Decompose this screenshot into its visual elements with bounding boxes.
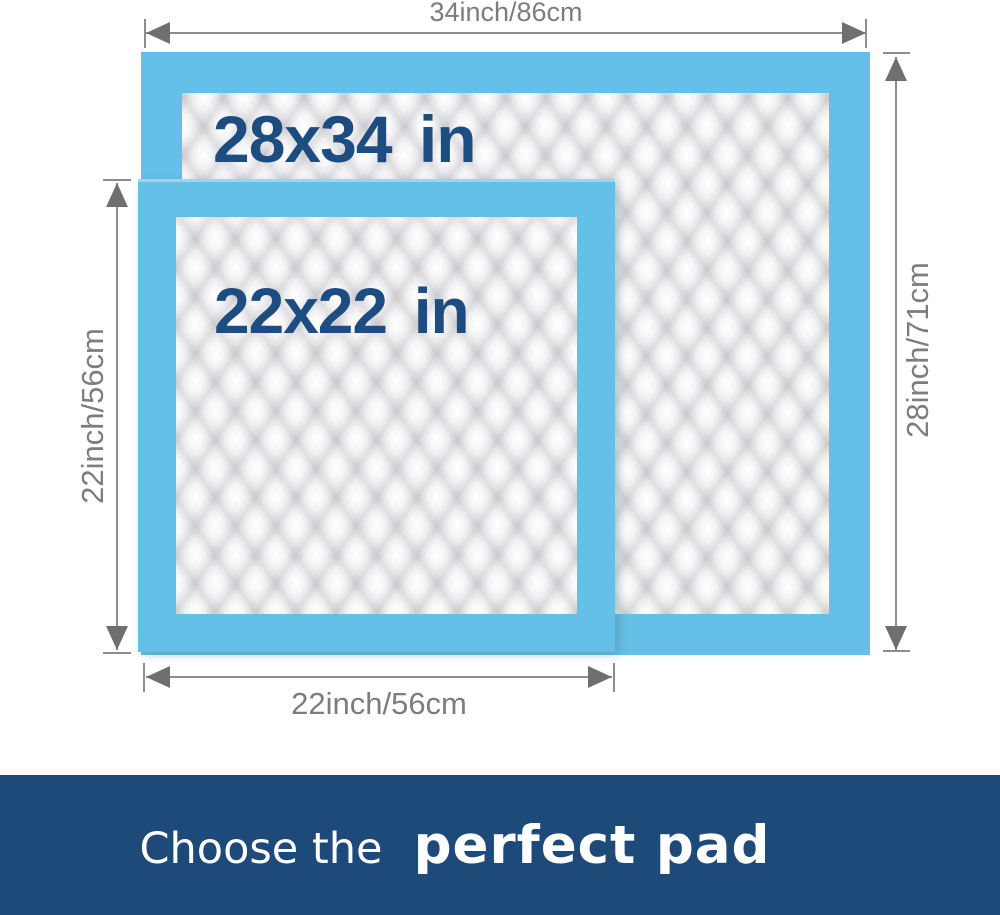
arrowhead-right-icon — [588, 666, 612, 688]
banner: Choose the perfect pad — [0, 775, 1000, 915]
pad-small: 22x22 in — [138, 179, 615, 652]
arrowhead-up-icon — [106, 183, 128, 207]
pad-large-size-label: 28x34 in — [213, 106, 476, 172]
pad-small-size-label: 22x22 in — [214, 279, 469, 343]
dimension-bottom-label: 22inch/56cm — [146, 687, 612, 721]
banner-text: Choose the perfect pad — [140, 815, 771, 876]
pad-size-comparison-diagram: 28x34 in 22x22 in 34inch/86cm 28inch/71c… — [0, 0, 1000, 915]
dimension-bottom-tick-left — [143, 663, 145, 692]
dimension-top-line — [146, 32, 866, 34]
dimension-bottom-line — [146, 676, 612, 678]
dimension-left-tick-top — [103, 179, 131, 181]
arrowhead-left-icon — [146, 22, 170, 44]
arrowhead-right-icon — [842, 22, 866, 44]
dimension-right-tick-top — [883, 52, 910, 54]
dimension-right-label: 28inch/71cm — [901, 262, 935, 438]
dimension-top-label: 34inch/86cm — [146, 0, 866, 28]
banner-prefix-text: Choose the — [140, 824, 383, 874]
arrowhead-down-icon — [885, 626, 907, 650]
arrowhead-down-icon — [106, 626, 128, 650]
dimension-right-tick-bottom — [883, 650, 910, 652]
pad-small-quilted-surface: 22x22 in — [176, 217, 577, 614]
dimension-left-line — [116, 183, 118, 650]
arrowhead-up-icon — [885, 57, 907, 81]
arrowhead-left-icon — [146, 666, 170, 688]
dimension-left-tick-bottom — [103, 652, 131, 654]
dimension-right-line — [895, 57, 897, 650]
dimension-top-tick-left — [144, 19, 146, 48]
banner-highlight-text: perfect pad — [414, 815, 771, 876]
dimension-bottom-tick-right — [613, 663, 615, 692]
dimension-top-tick-right — [865, 19, 867, 48]
dimension-left-label: 22inch/56cm — [76, 328, 110, 504]
